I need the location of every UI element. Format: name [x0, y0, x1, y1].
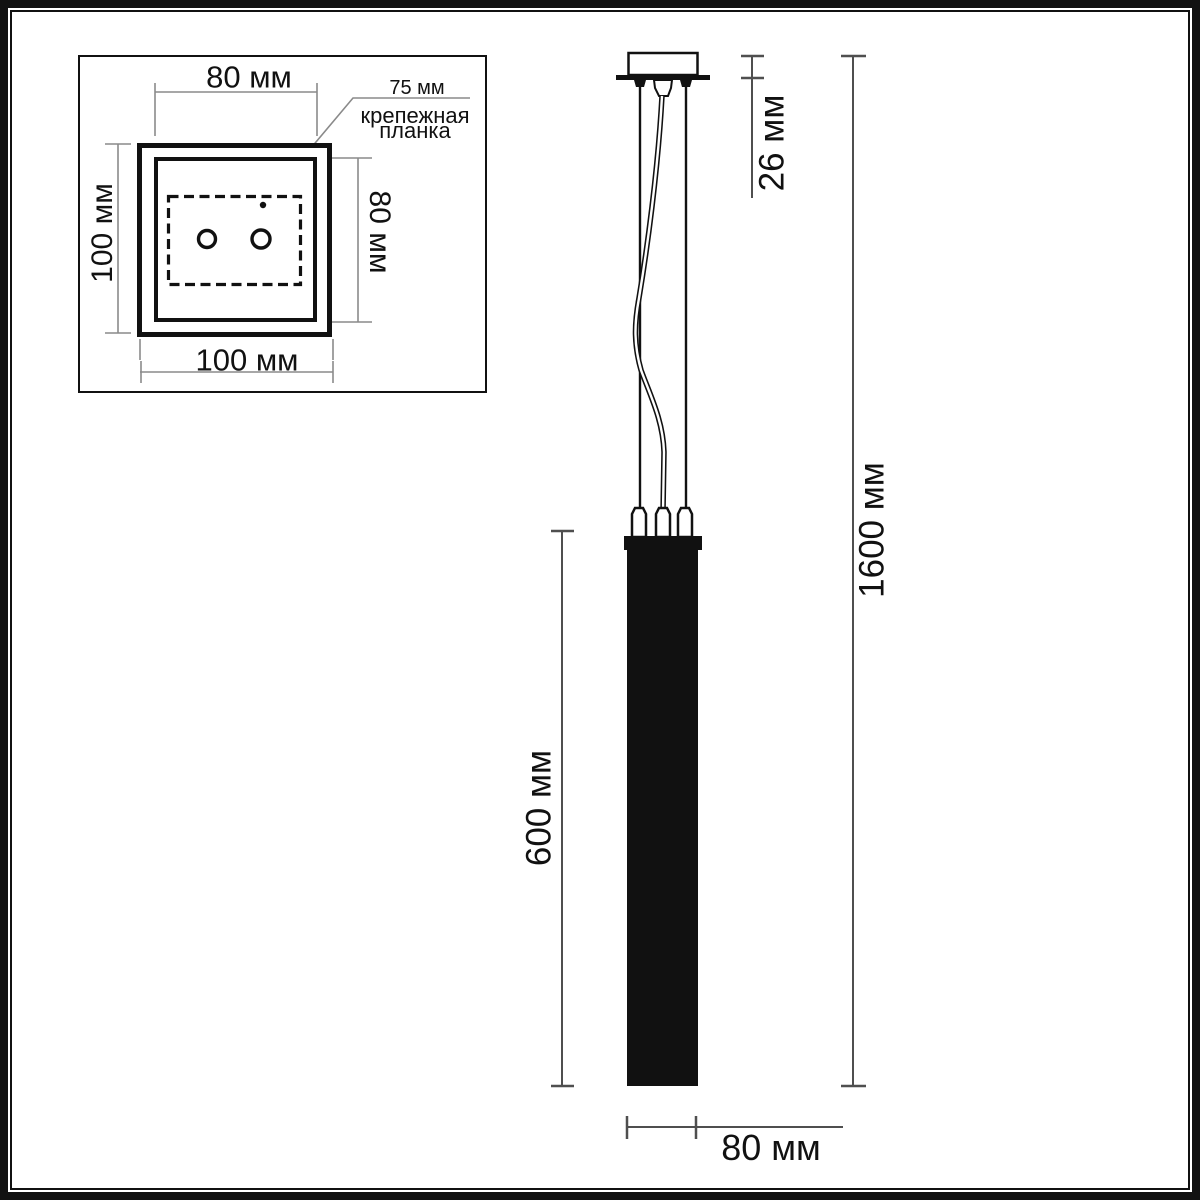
dim-label-plate-height-right: 80 мм: [364, 191, 394, 274]
mount-plate-top-view: 80 мм 100 мм 100 мм 80 мм 75 мм крепежна…: [78, 55, 487, 393]
dim-label-bracket-width: 75 мм: [389, 78, 444, 98]
ceiling-canopy: [629, 53, 698, 75]
dim-label-plate-height-left: 100 мм: [88, 183, 118, 283]
pendant-side-view: 26 мм 1600 мм 600 мм 80 мм: [500, 40, 900, 1180]
side-dimension-lines: [551, 55, 866, 1139]
cord-grip: [654, 80, 672, 96]
ferrule-center: [656, 508, 670, 537]
dim-label-shade-width: 80 мм: [721, 1130, 821, 1166]
dim-label-overall-height: 1600 мм: [855, 462, 890, 598]
screw-hole-right: [252, 230, 270, 248]
shade-cylinder: [627, 549, 698, 1086]
mounting-bracket-label: крепежная планка: [360, 108, 469, 138]
callout-anchor-dot: [260, 202, 266, 208]
screw-hole-left: [199, 231, 216, 248]
dim-label-canopy-height: 26 мм: [755, 95, 790, 192]
pendant-lamp-dimension-diagram: 80 мм 100 мм 100 мм 80 мм 75 мм крепежна…: [0, 0, 1200, 1200]
ferrule-left: [632, 508, 646, 537]
dim-label-plate-width-top: 80 мм: [206, 62, 292, 93]
dim-label-plate-width-bottom: 100 мм: [196, 345, 299, 376]
cable-nub-left: [634, 80, 646, 87]
dim-label-shade-height: 600 мм: [522, 750, 557, 866]
cable-nub-right: [680, 80, 692, 87]
shade-top-cap: [624, 536, 702, 550]
pendant-drawing: [500, 40, 900, 1180]
ferrule-right: [678, 508, 692, 537]
